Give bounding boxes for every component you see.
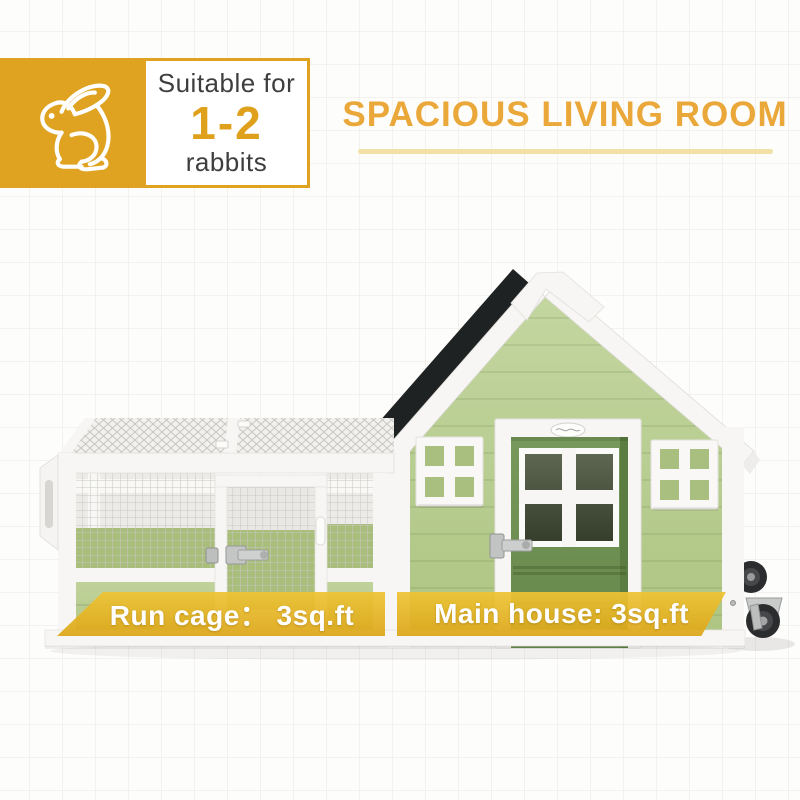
cage-top-rail bbox=[58, 453, 394, 473]
door-window bbox=[519, 448, 619, 547]
cage-sill-right bbox=[327, 568, 373, 582]
run-cage-banner: Run cage： 3sq.ft bbox=[57, 592, 385, 636]
cage-roof-mesh bbox=[58, 418, 394, 455]
main-house-banner: Main house: 3sq.ft bbox=[397, 592, 726, 636]
house-window-right bbox=[651, 440, 718, 511]
rabbit-hutch-illustration bbox=[0, 0, 800, 800]
screw bbox=[731, 601, 736, 606]
cage-door-handle bbox=[316, 517, 325, 545]
cage-left-post bbox=[58, 453, 76, 632]
house-right-trim bbox=[722, 427, 744, 648]
caster-wheel bbox=[746, 598, 782, 638]
main-house-label: Main house: 3sq.ft bbox=[434, 598, 689, 630]
run-cage-label: Run cage： 3sq.ft bbox=[110, 594, 354, 634]
roof-hinge bbox=[238, 421, 250, 427]
cage-interior-right bbox=[327, 473, 373, 570]
carry-handle bbox=[40, 455, 58, 550]
house-window-left bbox=[416, 437, 483, 508]
roof-hinge bbox=[216, 441, 228, 448]
main-house bbox=[364, 269, 767, 648]
cage-sill-left bbox=[76, 568, 215, 582]
product-infographic: Suitable for 1-2 rabbits SPACIOUS LIVING… bbox=[0, 0, 800, 800]
cage-interior-left bbox=[76, 473, 215, 570]
